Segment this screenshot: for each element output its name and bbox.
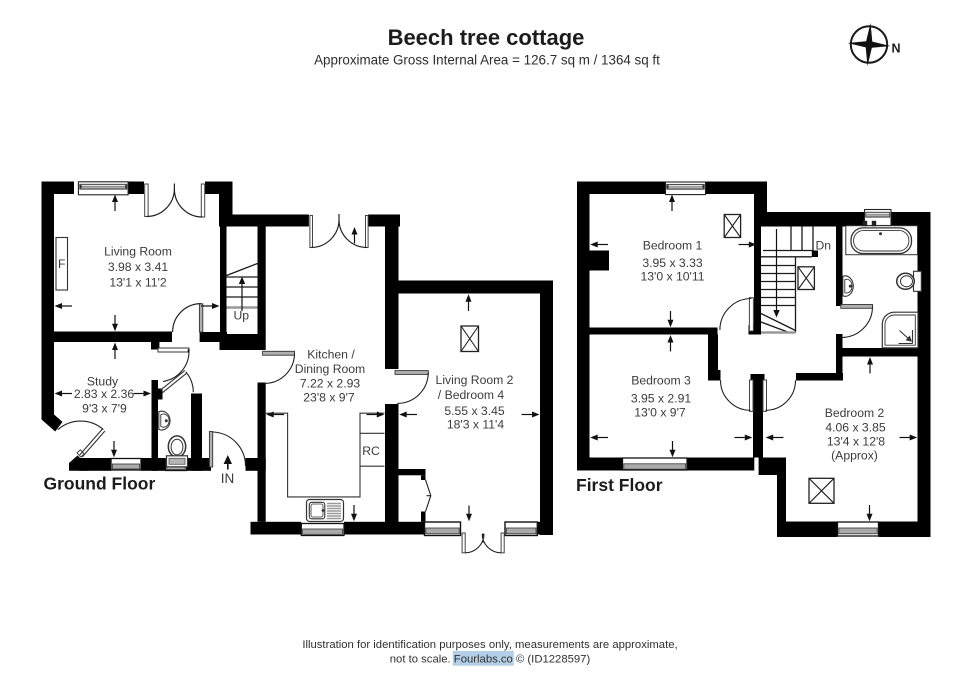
svg-text:Bedroom 1: Bedroom 1	[643, 239, 703, 253]
svg-text:/ Bedroom 4: / Bedroom 4	[438, 388, 505, 402]
svg-text:N: N	[892, 42, 901, 56]
svg-text:3.98 x 3.41: 3.98 x 3.41	[108, 260, 169, 274]
svg-text:13'1 x 11'2: 13'1 x 11'2	[109, 276, 167, 290]
svg-text:3.95 x 3.33: 3.95 x 3.33	[642, 256, 703, 270]
svg-text:13'4 x 12'8: 13'4 x 12'8	[827, 435, 885, 449]
svg-text:First Floor: First Floor	[576, 475, 663, 495]
svg-text:RC: RC	[362, 444, 380, 458]
svg-text:Bedroom 2: Bedroom 2	[825, 406, 885, 420]
svg-text:Dn: Dn	[816, 239, 832, 253]
svg-text:4.06 x 3.85: 4.06 x 3.85	[825, 421, 886, 435]
svg-text:23'8 x 9'7: 23'8 x 9'7	[303, 391, 355, 405]
svg-text:5.55 x 3.45: 5.55 x 3.45	[444, 404, 505, 418]
svg-text:Bedroom 3: Bedroom 3	[631, 374, 691, 388]
svg-text:Up: Up	[234, 309, 250, 323]
svg-text:18'3 x 11'4: 18'3 x 11'4	[447, 418, 505, 432]
svg-text:Living Room: Living Room	[104, 245, 172, 259]
svg-text:Approximate Gross Internal Are: Approximate Gross Internal Area = 126.7 …	[314, 53, 660, 68]
svg-text:IN: IN	[221, 471, 235, 486]
svg-text:Kitchen /: Kitchen /	[307, 348, 355, 362]
svg-text:Illustration for identificatio: Illustration for identification purposes…	[302, 639, 677, 651]
svg-text:2.83 x 2.36: 2.83 x 2.36	[74, 387, 135, 401]
svg-text:F: F	[58, 257, 65, 271]
svg-text:13'0 x 10'11: 13'0 x 10'11	[640, 270, 704, 284]
svg-text:3.95 x 2.91: 3.95 x 2.91	[631, 392, 692, 406]
svg-text:(Approx): (Approx)	[831, 449, 878, 463]
svg-text:13'0 x 9'7: 13'0 x 9'7	[634, 406, 686, 420]
svg-text:not to scale. Fourlabs.co © (I: not to scale. Fourlabs.co © (ID1228597)	[390, 654, 591, 666]
svg-text:Dining Room: Dining Room	[295, 362, 365, 376]
svg-text:7.22 x 2.93: 7.22 x 2.93	[300, 377, 361, 391]
svg-text:Living Room 2: Living Room 2	[436, 373, 514, 387]
svg-text:Beech tree cottage: Beech tree cottage	[388, 25, 585, 50]
svg-text:Ground Floor: Ground Floor	[44, 474, 156, 494]
svg-text:9'3 x 7'9: 9'3 x 7'9	[82, 402, 127, 416]
